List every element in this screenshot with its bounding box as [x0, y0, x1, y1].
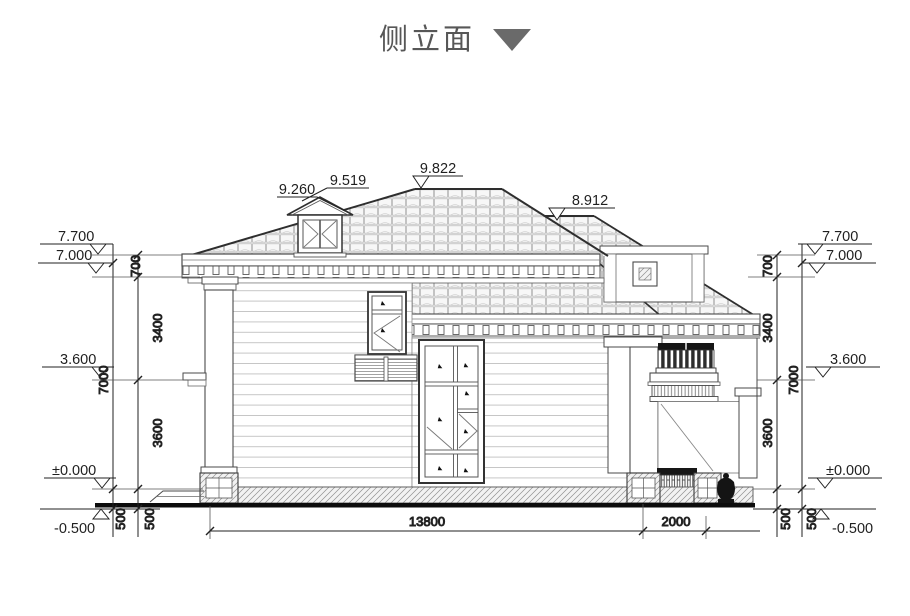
bottom-dimension-chain: 13800 2000: [206, 504, 760, 539]
plinth: [203, 487, 753, 503]
dim-7000-left: 7000: [96, 366, 111, 395]
window-louver-box: [355, 355, 417, 381]
balcony-balustrade: [656, 343, 716, 373]
ground-line: [95, 503, 755, 508]
main-eave-dentils: [182, 266, 600, 278]
level-7700-right: 7.700: [822, 229, 858, 245]
elevation-drawing: 9.260 9.519 9.822 8.912 7.700 7.000 3.60…: [0, 0, 910, 616]
dim-500-left-a: 500: [113, 508, 128, 530]
dim-500-left-b: 500: [142, 508, 157, 530]
left-pilaster: [201, 277, 238, 474]
level-3600-left: 3.600: [60, 352, 96, 368]
upper-wall-panel: [600, 246, 708, 302]
left-dimension-chain: 700 3400 3600 7000 500 500: [92, 244, 205, 537]
level-7000-left: 7.000: [56, 248, 92, 264]
level-0000-right: ±0.000: [826, 463, 870, 479]
dim-3600-left: 3600: [150, 419, 165, 448]
porch-beam: [650, 373, 718, 382]
level-9260-label: 9.260: [279, 182, 315, 198]
level-m0500-right: -0.500: [832, 521, 873, 537]
dim-500-right-b: 500: [804, 508, 819, 530]
porch-opening: [658, 402, 740, 474]
porch-vent-band: [652, 386, 714, 397]
level-0000-left: ±0.000: [52, 463, 96, 479]
dim-3400-right: 3400: [760, 314, 775, 343]
entry-steps: [150, 491, 204, 502]
dim-3600-right: 3600: [760, 419, 775, 448]
level-7700-left: 7.700: [58, 229, 94, 245]
pier-base: [200, 473, 238, 503]
dim-700-right: 700: [760, 255, 775, 277]
level-8912-label: 8.912: [572, 193, 608, 209]
secondary-eave-dentils: [408, 324, 760, 336]
corner-pilaster: [608, 347, 630, 473]
level-m0500-left: -0.500: [54, 521, 95, 537]
dim-700-left: 700: [128, 255, 143, 277]
level-3600-right: 3.600: [830, 352, 866, 368]
pier-base: [694, 473, 721, 503]
dim-13800: 13800: [409, 514, 445, 529]
main-eave: [182, 254, 604, 283]
left-ledge: [183, 373, 206, 386]
porch-pier-right: [739, 396, 757, 478]
elevation-sheet: 侧立面: [0, 0, 910, 616]
stair-window: [419, 340, 484, 483]
main-roof: [188, 189, 608, 256]
pier-base: [627, 473, 660, 503]
dim-500-right-a: 500: [778, 508, 793, 530]
second-floor-window: [368, 292, 406, 354]
secondary-eave: [408, 314, 760, 338]
dim-3400-left: 3400: [150, 314, 165, 343]
level-7000-right: 7.000: [826, 248, 862, 264]
dim-7000-right: 7000: [786, 366, 801, 395]
level-9822-label: 9.822: [420, 161, 456, 177]
dim-2000: 2000: [662, 514, 691, 529]
porch-pier-left: [630, 347, 658, 473]
level-9519-label: 9.519: [330, 173, 366, 189]
